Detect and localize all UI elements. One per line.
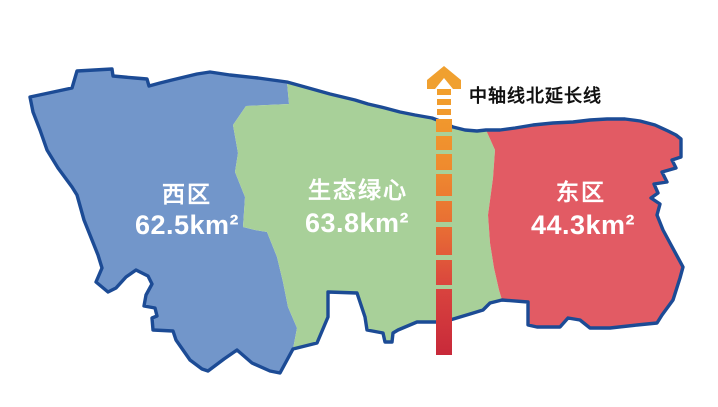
axis-dash <box>436 289 452 355</box>
axis-dashed-line <box>436 89 452 355</box>
axis-dash <box>436 260 452 285</box>
axis-dash <box>437 109 451 115</box>
north-arrow-icon <box>427 66 461 89</box>
map-canvas: 中轴线北延长线 西区 62.5km² 生态绿心 63.8km² 东区 44.3k… <box>0 0 718 407</box>
region-green-heart-area-label: 63.8km² <box>305 208 409 238</box>
region-green-heart-name-label: 生态绿心 <box>308 177 408 203</box>
region-west-name-label: 西区 <box>162 181 212 207</box>
axis-dash <box>436 227 452 255</box>
axis-dash <box>436 136 452 150</box>
region-west-area-label: 62.5km² <box>135 210 239 240</box>
region-east-area-label: 44.3km² <box>531 210 635 240</box>
district-map: 中轴线北延长线 西区 62.5km² 生态绿心 63.8km² 东区 44.3k… <box>0 0 718 407</box>
axis-dash <box>437 89 451 95</box>
axis-dash <box>437 99 451 105</box>
axis-label: 中轴线北延长线 <box>469 85 602 106</box>
region-east-name-label: 东区 <box>556 179 606 205</box>
axis-dash <box>436 154 452 170</box>
axis-dash <box>436 201 452 222</box>
axis-dash <box>436 119 452 132</box>
axis-dash <box>436 174 452 196</box>
